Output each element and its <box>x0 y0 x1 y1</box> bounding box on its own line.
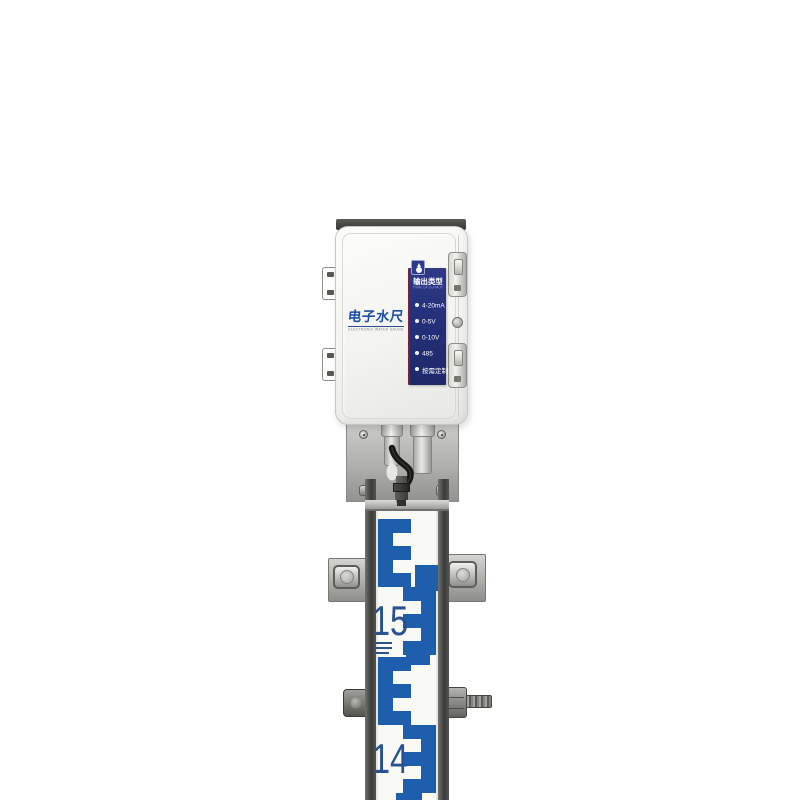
brand-subtitle: ELECTRONIC WATER GAUGE <box>345 328 407 333</box>
bullet-icon <box>415 319 419 323</box>
divider <box>348 326 404 327</box>
output-option: 0-5V <box>410 314 446 330</box>
output-option: 485 <box>410 346 446 362</box>
product-photo: 电子水尺 ELECTRONIC WATER GAUGE 输出类型 TYPE OF… <box>0 0 800 800</box>
screw-icon <box>452 317 463 328</box>
latch-icon <box>448 343 467 388</box>
panel-subheader: TYPE OF OUTPUT <box>410 286 446 293</box>
screw-icon <box>359 430 368 439</box>
bullet-icon <box>415 303 419 307</box>
brand-label: 电子水尺 ELECTRONIC WATER GAUGE <box>345 305 407 333</box>
output-option: 4-20mA <box>410 298 446 314</box>
gauge-scale: 15 14 <box>376 511 438 800</box>
output-type-panel: 输出类型 TYPE OF OUTPUT 4-20mA 0-5V 0-10V 48… <box>408 268 446 385</box>
gauge-side-channel <box>438 479 449 800</box>
cable-connector <box>393 483 410 492</box>
screw-icon <box>437 430 446 439</box>
hex-bolt-icon <box>448 561 477 588</box>
output-option: 按需定制 <box>410 362 446 378</box>
droplet-glyph <box>416 267 422 273</box>
gauge-side-channel <box>365 479 376 800</box>
hex-bolt-icon <box>333 565 360 589</box>
panel-header: 输出类型 <box>410 276 446 286</box>
bullet-icon <box>415 367 419 371</box>
water-drop-icon <box>411 260 425 275</box>
cable-connector <box>395 492 408 500</box>
cable-connector <box>396 476 407 483</box>
brand-title: 电子水尺 <box>344 305 408 325</box>
bullet-icon <box>415 335 419 339</box>
threaded-stud-icon <box>466 695 492 708</box>
cable-connector <box>397 500 406 506</box>
bullet-icon <box>415 351 419 355</box>
latch-icon <box>448 252 467 297</box>
output-options-list: 4-20mA 0-5V 0-10V 485 按需定制 <box>410 298 446 378</box>
output-option: 0-10V <box>410 330 446 346</box>
gauge-number-lower: 14 <box>376 735 408 782</box>
gauge-number-upper: 15 <box>376 597 408 644</box>
